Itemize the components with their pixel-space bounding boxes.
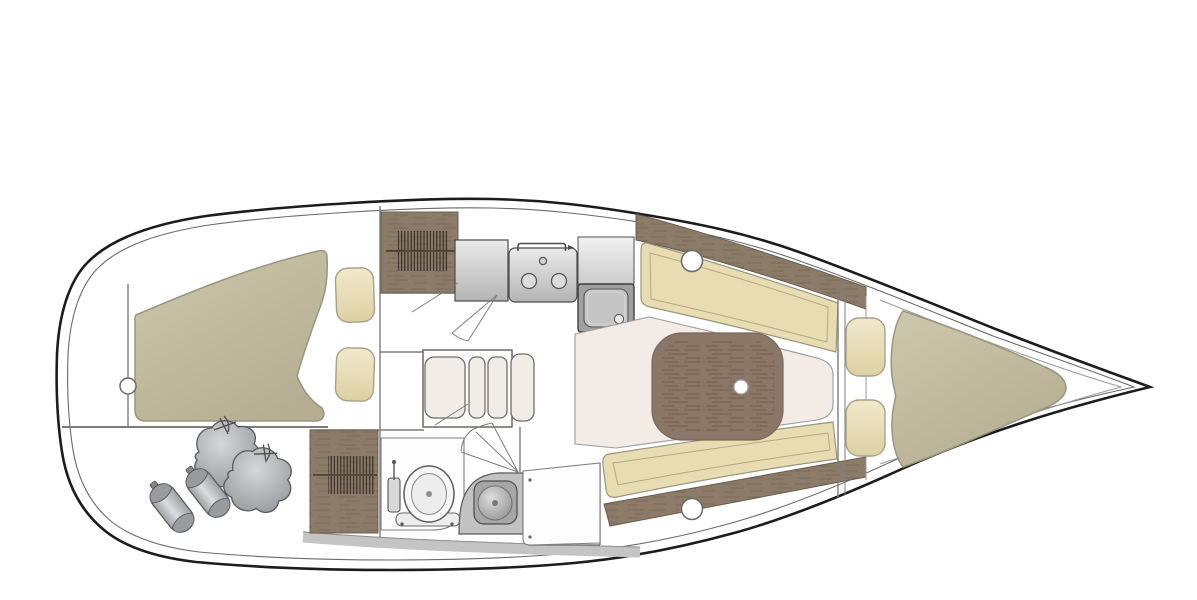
seat-pin-icon <box>528 478 531 481</box>
vberth-pillow-top <box>846 318 885 376</box>
aft-bulkhead-circle <box>120 378 136 394</box>
table-leaf <box>488 357 507 418</box>
port-porthole <box>682 251 703 272</box>
seat-pin-icon <box>528 535 531 538</box>
toilet-tank <box>388 478 400 512</box>
table-leaf <box>469 357 485 418</box>
boat-floor-plan-page <box>0 0 1197 600</box>
starboard-porthole <box>682 499 703 520</box>
table-leaf <box>511 354 534 421</box>
aft-pillow-top <box>335 267 375 322</box>
galley-upper-block <box>578 237 634 284</box>
burner-small-icon <box>539 257 546 264</box>
table-leaf <box>425 357 465 418</box>
louver-hatch-icon <box>398 231 448 250</box>
folding-table <box>423 350 534 427</box>
toilet-drain-icon <box>426 491 432 497</box>
vberth-pillow-bottom <box>846 400 885 456</box>
boat-floor-plan <box>0 0 1197 600</box>
table-leg-dot <box>734 380 748 394</box>
stove <box>509 248 577 302</box>
toilet-pump-knob-icon <box>392 460 396 464</box>
hatched-locker-head <box>310 430 378 533</box>
louver-hatch-icon <box>398 252 448 271</box>
hatched-locker-aft <box>381 212 458 293</box>
louver-hatch-icon <box>328 456 375 474</box>
drain-icon <box>492 500 498 506</box>
burner-icon <box>552 274 567 289</box>
toilet-foot-icon <box>400 522 403 525</box>
burner-icon <box>522 274 537 289</box>
nav-seat <box>523 463 600 545</box>
aft-pillow-bottom <box>335 347 375 401</box>
toilet-foot-icon <box>450 522 453 525</box>
louver-hatch-icon <box>328 476 375 494</box>
drain-icon <box>614 314 623 323</box>
galley-counter <box>455 240 508 301</box>
